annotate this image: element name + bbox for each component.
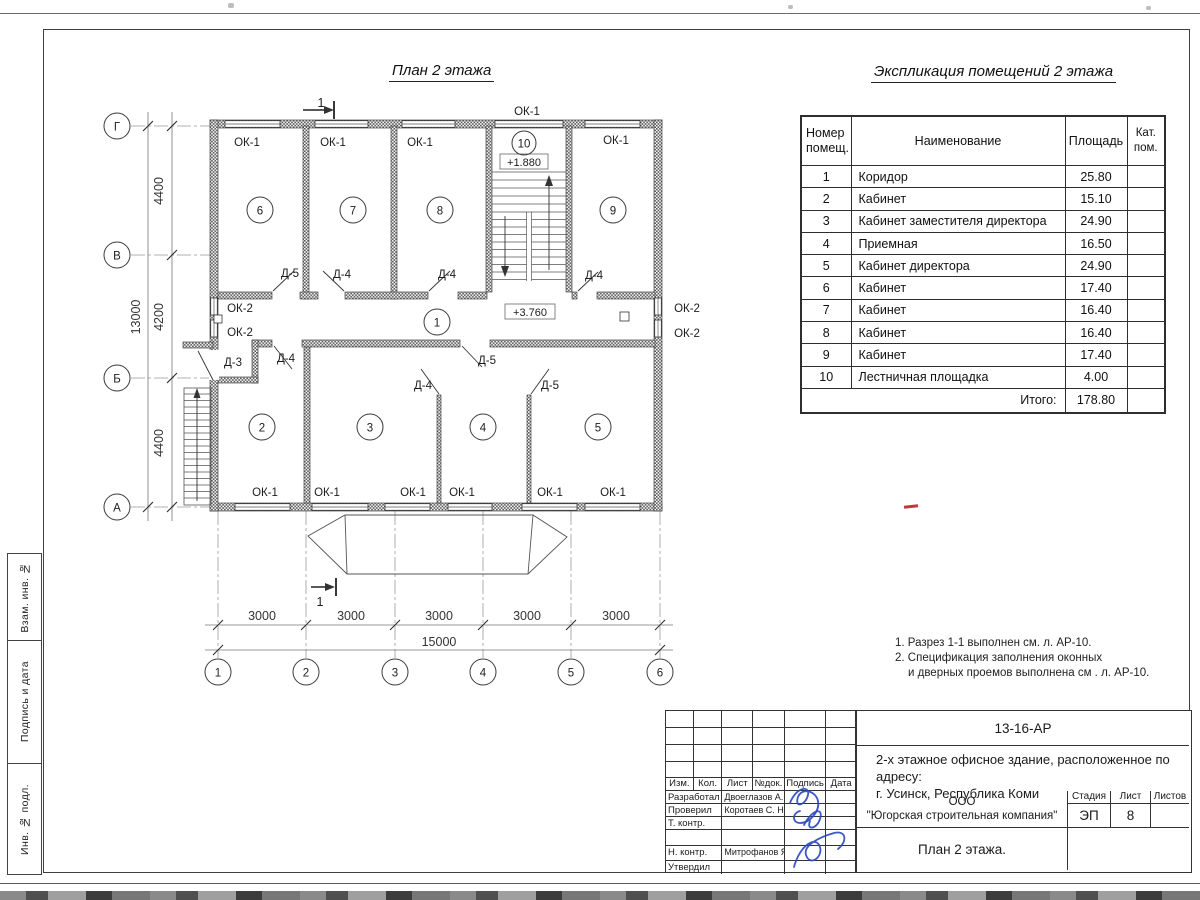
window-label: ОК-1 [514, 106, 540, 118]
table-cell [1127, 277, 1165, 299]
table-cell: 16.40 [1065, 322, 1127, 344]
room-bubble: 3 [357, 414, 383, 440]
axis-bubble: 4 [470, 659, 496, 685]
table-cell: 17.40 [1065, 277, 1127, 299]
entrance-canopy [308, 515, 567, 574]
signer-role: Проверил [666, 804, 722, 816]
window-label: ОК-2 [674, 303, 700, 315]
elevation-label: +1.880 [507, 157, 541, 169]
signer-role [666, 830, 722, 845]
titleblock-revision-grid [666, 711, 856, 778]
table-cell [1127, 366, 1165, 388]
table-cell: 5 [801, 255, 851, 277]
table-row: 10Лестничная площадка4.00 [801, 366, 1165, 388]
project-description: 2-х этажное офисное здание, расположенно… [857, 746, 1189, 791]
table-row: 2Кабинет15.10 [801, 188, 1165, 210]
dimension-label: 3000 [248, 609, 276, 623]
dimension-label: 4200 [152, 303, 166, 331]
table-cell: 3 [801, 210, 851, 232]
door-label: Д-4 [585, 270, 604, 282]
sheets-label: Листов [1151, 791, 1189, 803]
walls [183, 120, 662, 511]
axis-bubble: 1 [205, 659, 231, 685]
table-row: 4Приемная16.50 [801, 232, 1165, 254]
table-cell: Кабинет [851, 299, 1065, 321]
door-label: Д-4 [414, 380, 433, 392]
section-mark-bottom [311, 578, 336, 596]
table-cell [1127, 210, 1165, 232]
table-cell [1127, 255, 1165, 277]
stamp-box-inv: Инв. № подл. [7, 763, 42, 875]
windows [211, 121, 662, 511]
table-row: 5Кабинет директора24.90 [801, 255, 1165, 277]
table-cell: 6 [801, 277, 851, 299]
table-cell: Приемная [851, 232, 1065, 254]
col-header-cat: Кат. пом. [1127, 116, 1165, 166]
table-cell: 9 [801, 344, 851, 366]
svg-text:1: 1 [434, 317, 440, 329]
stairwell [492, 172, 566, 281]
elevation-label: +3.760 [513, 307, 547, 319]
door-label: Д-5 [478, 355, 496, 367]
explication-body: 1Коридор25.802Кабинет15.103Кабинет замес… [801, 166, 1165, 389]
window-label: ОК-2 [227, 303, 253, 315]
svg-text:3: 3 [392, 667, 398, 679]
axis-bubble: А [104, 494, 130, 520]
room-bubble: 6 [247, 197, 273, 223]
window-label: ОК-1 [600, 487, 626, 499]
dimension-label: 4400 [152, 429, 166, 457]
table-cell: Кабинет директора [851, 255, 1065, 277]
table-cell: 7 [801, 299, 851, 321]
axis-bubble: Б [104, 365, 130, 391]
svg-text:4: 4 [480, 422, 487, 434]
notes: 1. Разрез 1-1 выполнен см. л. АР-10. 2. … [895, 636, 1149, 681]
room-bubble: 10 [512, 131, 536, 155]
total-row: Итого: 178.80 [801, 388, 1165, 413]
svg-text:4: 4 [480, 667, 487, 679]
axis-bubble: В [104, 242, 130, 268]
col-header-name: Наименование [851, 116, 1065, 166]
table-cell [1127, 322, 1165, 344]
door-label: Д-4 [277, 353, 296, 365]
svg-text:2: 2 [303, 667, 309, 679]
section-mark-label: 1 [317, 595, 324, 609]
org-line: "Югорская строительная компания" [867, 809, 1058, 823]
room-bubble: 9 [600, 197, 626, 223]
scan-band [0, 891, 1200, 900]
table-cell: 24.90 [1065, 255, 1127, 277]
window-label: ОК-2 [227, 327, 253, 339]
room-bubble: 7 [340, 197, 366, 223]
table-cell: 15.10 [1065, 188, 1127, 210]
table-row: 6Кабинет17.40 [801, 277, 1165, 299]
svg-text:5: 5 [568, 667, 574, 679]
axis-bubble: 2 [293, 659, 319, 685]
door-label: Д-3 [224, 357, 242, 369]
table-cell: 1 [801, 166, 851, 188]
total-value: 178.80 [1065, 388, 1127, 413]
section-mark-label: 1 [318, 96, 325, 110]
window-label: ОК-1 [400, 487, 426, 499]
org-line: ООО [949, 795, 976, 809]
window-label: ОК-1 [449, 487, 475, 499]
explication-table: Номер помещ. Наименование Площадь Кат. п… [800, 115, 1166, 414]
svg-text:1: 1 [215, 667, 221, 679]
sheet-title: План 2 этажа. [857, 828, 1068, 870]
svg-text:А: А [113, 502, 121, 514]
stage-sheet-grid: Стадия Лист Листов ЭП 8 [1068, 791, 1189, 828]
door-label: Д-4 [438, 269, 457, 281]
table-cell: Кабинет [851, 322, 1065, 344]
organization: ООО "Югорская строительная компания" [857, 791, 1068, 828]
sheet-label: Лист [1111, 791, 1151, 803]
window-label: ОК-1 [407, 137, 433, 149]
svg-text:6: 6 [257, 205, 263, 217]
table-cell: 17.40 [1065, 344, 1127, 366]
room-bubble: 5 [585, 414, 611, 440]
dimension-label: 3000 [513, 609, 541, 623]
signer-role: Н. контр. [666, 846, 722, 860]
scan-speck [1146, 6, 1151, 10]
note-line: и дверных проемов выполнена см . л. АР-1… [895, 666, 1149, 681]
window-label: ОК-1 [234, 137, 260, 149]
table-cell: Кабинет [851, 277, 1065, 299]
window-label: ОК-1 [320, 137, 346, 149]
column-header: Изм. [666, 778, 694, 790]
table-cell: Кабинет заместителя директора [851, 210, 1065, 232]
svg-text:8: 8 [437, 205, 443, 217]
table-row: 3Кабинет заместителя директора24.90 [801, 210, 1165, 232]
dimension-label: 13000 [129, 300, 143, 335]
titleblock-empty-cell [1068, 828, 1189, 870]
dimension-label: 3000 [337, 609, 365, 623]
table-cell: Кабинет [851, 188, 1065, 210]
table-cell: 16.50 [1065, 232, 1127, 254]
table-row: 8Кабинет16.40 [801, 322, 1165, 344]
floor-plan-drawing: ОК-1ОК-1ОК-1ОК-1ОК-1ОК-2ОК-2ОК-2ОК-2ОК-1… [0, 0, 780, 700]
scan-speck [788, 5, 793, 9]
signature [804, 811, 821, 827]
door-label: Д-5 [541, 380, 559, 392]
room-bubble: 2 [249, 414, 275, 440]
svg-text:10: 10 [518, 138, 531, 150]
svg-text:2: 2 [259, 422, 265, 434]
table-cell: Кабинет [851, 344, 1065, 366]
svg-text:В: В [113, 250, 121, 262]
drawing-sheet: Взам. инв. № Подпись и дата Инв. № подл.… [0, 0, 1200, 900]
table-cell: 4 [801, 232, 851, 254]
document-number: 13-16-АР [857, 711, 1189, 746]
stage-label: Стадия [1068, 791, 1111, 803]
dimension-label: 15000 [422, 635, 457, 649]
room-bubble: 1 [424, 309, 450, 335]
signer-role: Утвердил [666, 861, 722, 874]
revision-row [666, 762, 856, 778]
table-cell: 8 [801, 322, 851, 344]
table-cell [1127, 188, 1165, 210]
dimension-label: 3000 [602, 609, 630, 623]
table-cell [1127, 232, 1165, 254]
column-header: Кол. [694, 778, 723, 790]
table-row: 1Коридор25.80 [801, 166, 1165, 188]
stamp-label: Инв. № подл. [19, 784, 31, 855]
door-label: Д-5 [281, 268, 299, 280]
axis-bubble: 6 [647, 659, 673, 685]
window-label: ОК-1 [537, 487, 563, 499]
col-header-number: Номер помещ. [801, 116, 851, 166]
window-label: ОК-1 [603, 135, 629, 147]
revision-row [666, 728, 856, 745]
svg-text:9: 9 [610, 205, 616, 217]
exterior-stair [184, 388, 211, 505]
table-cell [1127, 344, 1165, 366]
svg-text:Г: Г [114, 121, 121, 133]
title-block: Изм.Кол.Лист№док.ПодписьДата РазработалД… [665, 710, 1192, 873]
revision-row [666, 745, 856, 762]
table-cell: Лестничная площадка [851, 366, 1065, 388]
col-header-area: Площадь [1065, 116, 1127, 166]
explication-title: Экспликация помещений 2 этажа [871, 63, 1116, 83]
svg-text:Б: Б [113, 373, 121, 385]
table-cell [1127, 166, 1165, 188]
total-label: Итого: [801, 388, 1065, 413]
table-cell: 16.40 [1065, 299, 1127, 321]
table-cell: 2 [801, 188, 851, 210]
note-line: 1. Разрез 1-1 выполнен см. л. АР-10. [895, 636, 1149, 651]
table-cell: 24.90 [1065, 210, 1127, 232]
signature [794, 832, 844, 867]
svg-text:3: 3 [367, 422, 373, 434]
table-row: 9Кабинет17.40 [801, 344, 1165, 366]
window-label: ОК-1 [314, 487, 340, 499]
signer-role: Т. контр. [666, 817, 722, 829]
svg-text:6: 6 [657, 667, 663, 679]
signatures [776, 783, 871, 873]
paper-edge-line [0, 883, 1200, 884]
table-cell: 10 [801, 366, 851, 388]
axis-bubble: Г [104, 113, 130, 139]
table-cell: Коридор [851, 166, 1065, 188]
room-bubble: 8 [427, 197, 453, 223]
door-label: Д-4 [333, 269, 352, 281]
window-label: ОК-2 [674, 328, 700, 340]
column-header: Лист [722, 778, 753, 790]
sheet-value: 8 [1111, 804, 1151, 828]
table-cell: 4.00 [1065, 366, 1127, 388]
dimension-label: 3000 [425, 609, 453, 623]
room-bubble: 4 [470, 414, 496, 440]
svg-text:5: 5 [595, 422, 601, 434]
table-cell: 25.80 [1065, 166, 1127, 188]
stage-value: ЭП [1068, 804, 1111, 828]
signature [790, 789, 818, 823]
note-line: 2. Спецификация заполнения оконных [895, 651, 1149, 666]
axis-bubble: 3 [382, 659, 408, 685]
project-line: 2-х этажное офисное здание, расположенно… [876, 751, 1189, 785]
table-cell [1127, 299, 1165, 321]
dimension-label: 4400 [152, 177, 166, 205]
svg-text:7: 7 [350, 205, 356, 217]
axis-bubble: 5 [558, 659, 584, 685]
sheets-value [1151, 804, 1189, 828]
signer-role: Разработал [666, 791, 722, 803]
revision-row [666, 711, 856, 728]
table-row: 7Кабинет16.40 [801, 299, 1165, 321]
window-label: ОК-1 [252, 487, 278, 499]
